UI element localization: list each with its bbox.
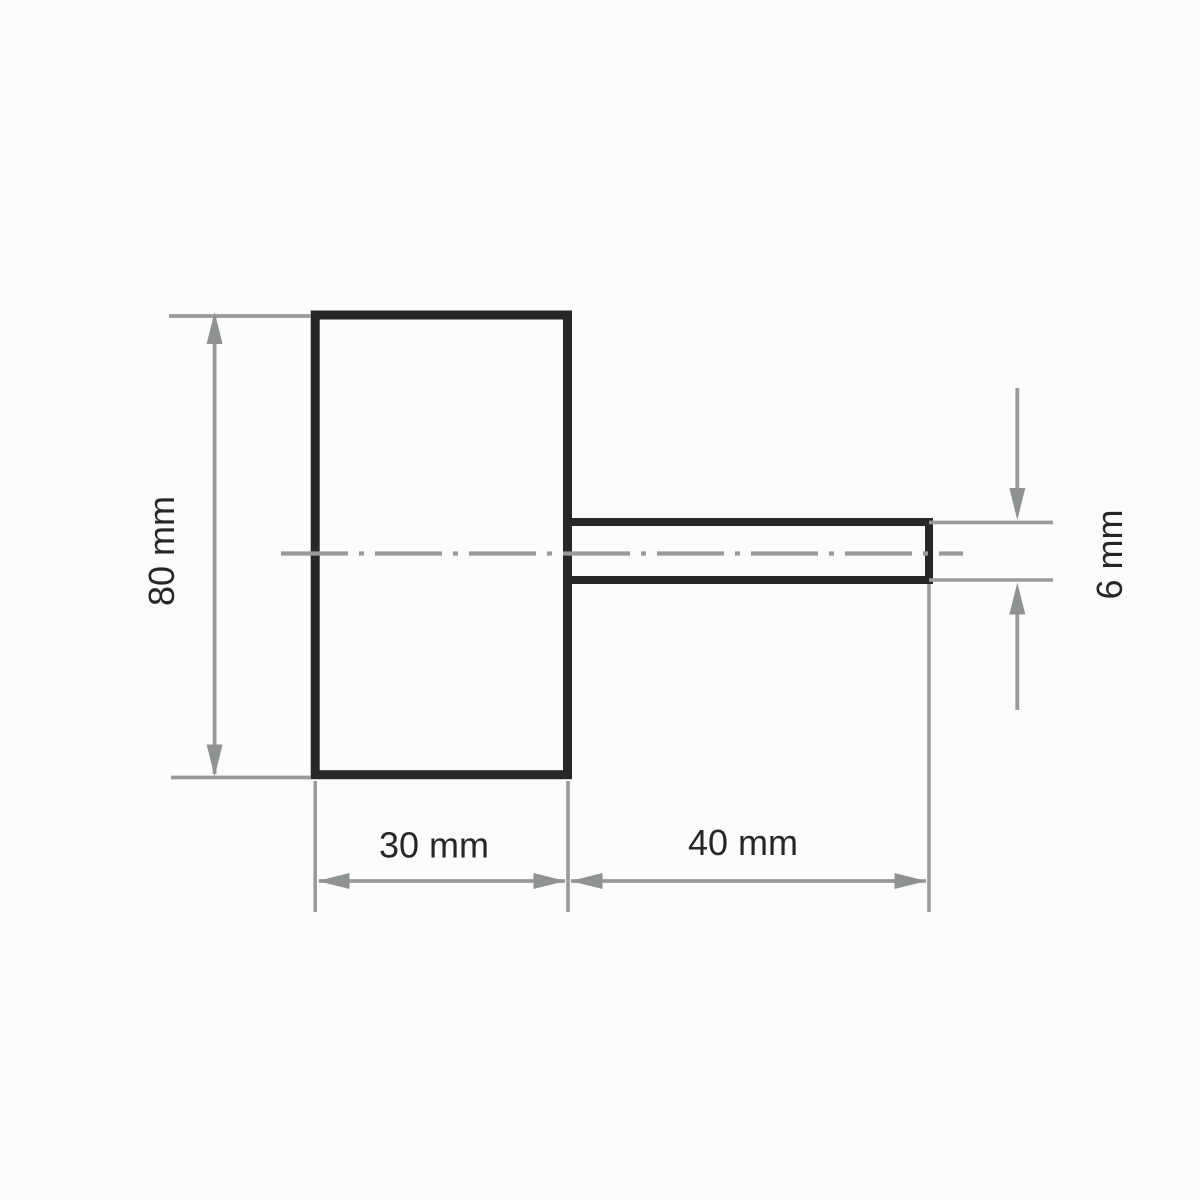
svg-text:80 mm: 80 mm xyxy=(141,496,182,606)
svg-text:6 mm: 6 mm xyxy=(1089,510,1130,600)
svg-text:40 mm: 40 mm xyxy=(688,822,798,863)
svg-text:30 mm: 30 mm xyxy=(379,825,489,866)
